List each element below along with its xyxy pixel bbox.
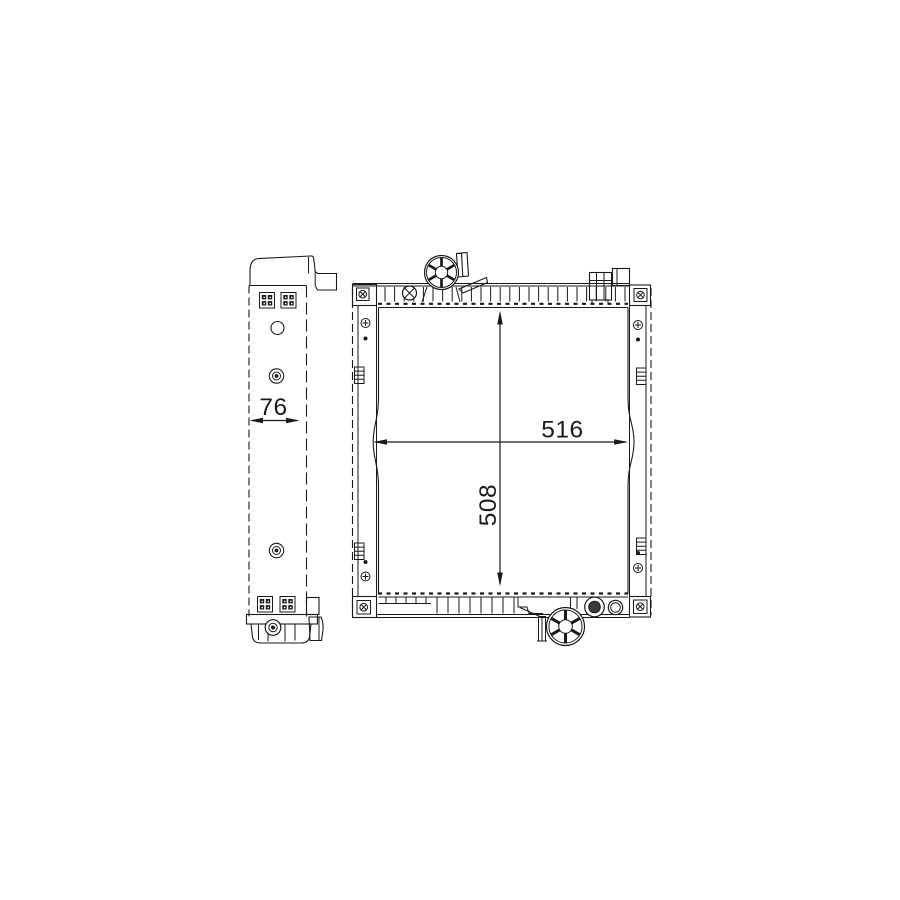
outlet-pipe-icon [547,608,585,646]
mounting-pad-icon-top-left [260,293,275,309]
arrowhead-down [497,573,503,587]
bolt-cross [635,322,641,328]
mounting-pad-icon-bottom-left [258,597,273,613]
outlet-support-lines [571,598,578,610]
rivet-dot-top [636,338,640,342]
clip-ribs [355,371,365,379]
pad-frame [280,597,295,613]
bolt-icon-lower [269,543,283,557]
left-side-frame [353,288,377,615]
bolt-cross [635,565,641,571]
arrowhead-right [286,418,300,423]
corner-bolt-cross [360,292,365,297]
clip-ribs [637,542,647,550]
dimension-depth: 76 [250,394,300,423]
drain-port-hatched-center [589,601,601,613]
frame-bolt-icon-top [634,321,643,330]
drain-port-icon [585,597,605,617]
bolt-dot [275,549,279,553]
corner-bolt-cross [638,604,643,609]
arrowhead-up [497,311,503,325]
frame-bolt-icon-bottom [634,564,643,573]
core [373,308,634,594]
rivet-dot-top [364,337,368,341]
arrowhead-left [373,439,387,445]
cap-outline [250,256,337,290]
corner-bolt-cross [638,292,643,297]
side-view-body [249,286,307,617]
side-view-top-cap [250,256,337,290]
bolt-cross [363,320,369,326]
dimension-width-label: 516 [541,417,583,444]
outlet-assembly [518,597,623,645]
corner-bracket-top-right [630,285,651,306]
pad-frame [260,293,275,309]
bleed-screw-icon [403,286,417,300]
bolt-dot [275,374,279,378]
rivet-dot-bottom [636,551,640,555]
filler-wedge-bracket [459,278,488,294]
mounting-pad-icon-bottom-right [280,597,295,613]
arrowhead-left [250,418,264,423]
bolt-icon-upper [269,369,283,383]
frame-bolt-icon-bottom [361,572,370,581]
front-view: 516 508 [353,253,652,646]
corner-bracket-bottom-left [353,597,377,618]
tank-ribs [437,598,514,614]
core-left-edge [373,308,378,594]
rivet-dot-bottom [364,560,368,564]
bracket-right-lower [309,617,323,641]
frame-bolt-icon-top [361,319,370,328]
bracket-bolt-dot [271,626,275,630]
pad-stud-dots [284,601,291,609]
corner-bracket-bottom-right [630,597,651,618]
clip-ribs [637,372,647,380]
arrowhead-right [614,439,628,445]
clip-icon-top [637,368,647,385]
side-port-icon [608,600,622,614]
corner-bolt-cross [361,605,366,610]
side-view: 76 [247,256,337,643]
pad-frame [258,597,273,613]
dimension-height: 508 [475,311,503,586]
bolt-cross [363,574,369,580]
dimension-depth-label: 76 [259,394,287,421]
radiator-diagram-canvas: 76 [0,0,900,900]
pad-stud-dots [285,297,292,304]
corner-bracket-top-left [353,285,377,306]
filler-cap-icon [422,253,488,303]
core-right-edge [628,308,634,594]
dimension-height-label: 508 [475,484,502,526]
clip-ribs [355,547,365,555]
radiator-diagram-page: 76 [0,0,900,900]
round-opening [271,322,284,335]
pad-frame [281,293,296,309]
tank-short-ticks [379,598,432,604]
mounting-pad-icon-top-right [281,293,296,309]
bracket-right-upper [307,598,320,615]
pad-stud-dots [264,297,271,304]
connector-detail-lines [590,273,612,305]
tank-top-edge [353,284,631,287]
top-tank [353,284,631,308]
clip-icon-bottom [355,543,365,560]
pad-stud-dots [262,601,269,609]
clip-icon-top [355,367,365,384]
